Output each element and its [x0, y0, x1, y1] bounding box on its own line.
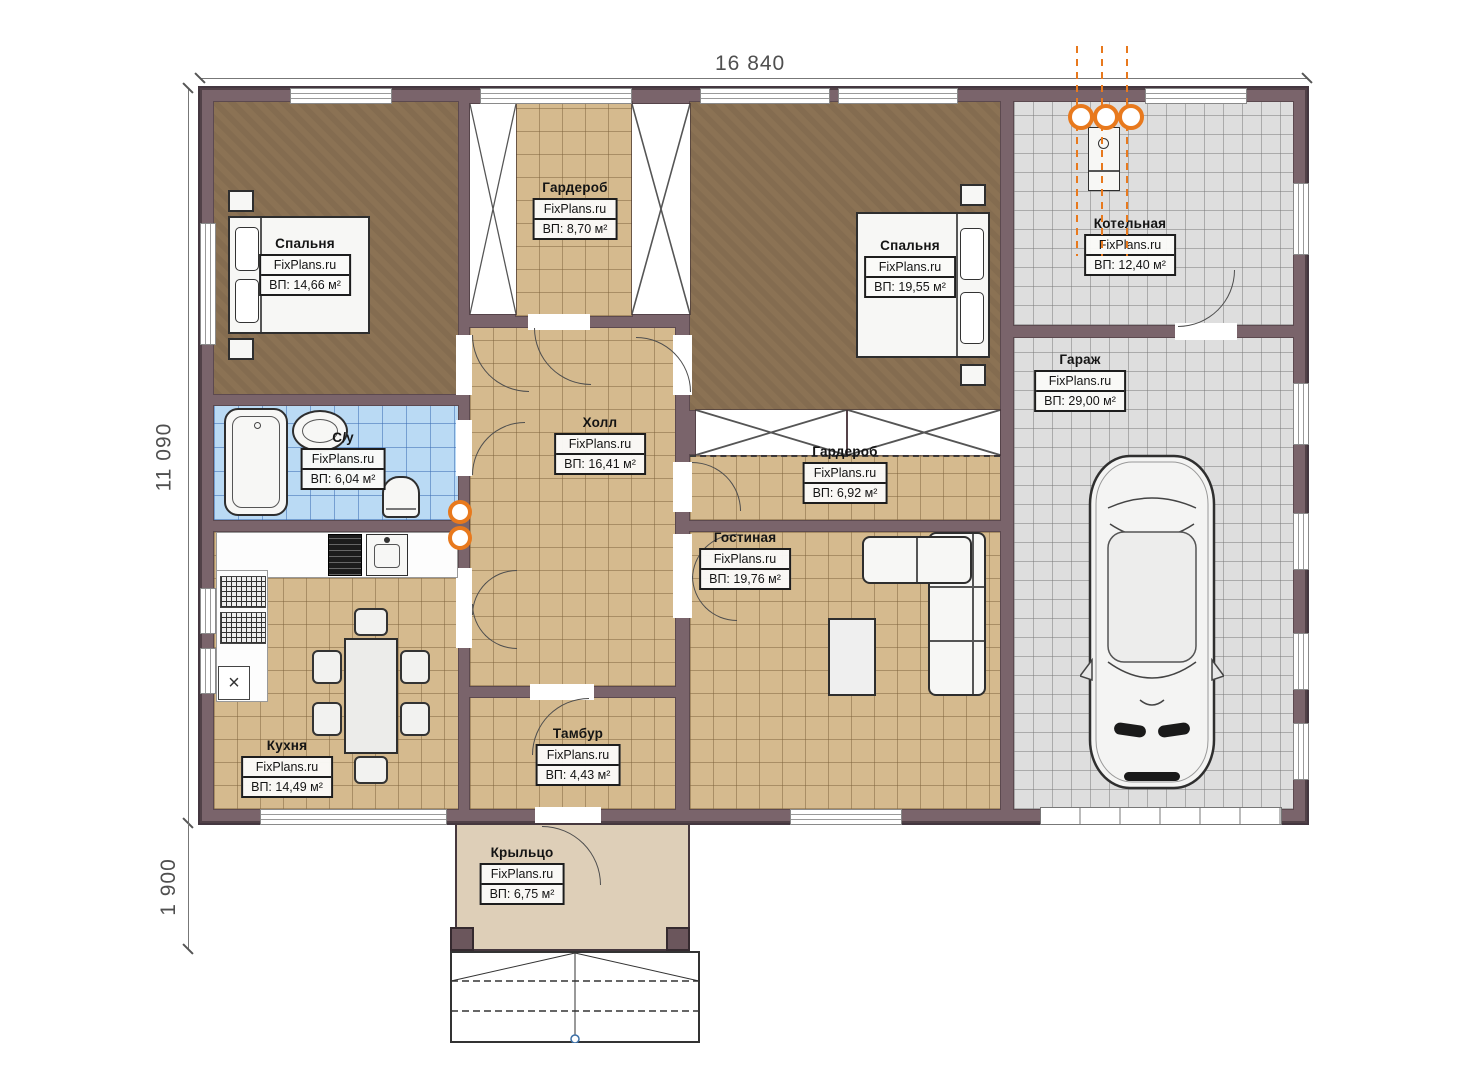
boiler-icon [1088, 127, 1120, 191]
room-area: ВП: 6,75 м² [482, 883, 563, 903]
door-opening [673, 534, 692, 618]
room-label-wardrobe-top: Гардероб FixPlans.ru ВП: 8,70 м² [533, 180, 618, 240]
room-name: С/у [301, 430, 386, 445]
room-area: ВП: 6,92 м² [805, 482, 886, 502]
room-label-boiler: Котельная FixPlans.ru ВП: 12,40 м² [1084, 216, 1176, 276]
room-area: ВП: 29,00 м² [1036, 390, 1124, 410]
garage-door [1040, 807, 1282, 825]
appliance-icon [220, 576, 266, 608]
room-area: ВП: 12,40 м² [1086, 254, 1174, 274]
room-name: Гардероб [803, 444, 888, 459]
utility-entry-icon [1118, 104, 1144, 130]
brand-watermark: FixPlans.ru [1036, 372, 1124, 390]
room-label-porch: Крыльцо FixPlans.ru ВП: 6,75 м² [480, 845, 565, 905]
window [1293, 383, 1309, 445]
window [1293, 183, 1309, 255]
window [480, 88, 632, 104]
stove-icon [328, 534, 362, 576]
utility-entry-icon [1068, 104, 1094, 130]
door-opening [456, 420, 472, 476]
room-name: Крыльцо [480, 845, 565, 860]
porch-post [450, 927, 474, 951]
brand-watermark: FixPlans.ru [303, 450, 384, 468]
brand-watermark: FixPlans.ru [866, 258, 954, 276]
room-area: ВП: 19,55 м² [866, 276, 954, 296]
room-name: Тамбур [536, 726, 621, 741]
room-label-garage: Гараж FixPlans.ru ВП: 29,00 м² [1034, 352, 1126, 412]
porch-post [666, 927, 690, 951]
room-area: ВП: 4,43 м² [538, 764, 619, 784]
door-opening [673, 462, 692, 512]
nightstand [228, 338, 254, 360]
dimension-height-label: 11 090 [152, 423, 176, 492]
closet-icon [470, 104, 516, 314]
room-label-wardrobe2: Гардероб FixPlans.ru ВП: 6,92 м² [803, 444, 888, 504]
window [200, 588, 216, 634]
room-boiler-floor [1014, 102, 1293, 325]
room-name: Спальня [259, 236, 351, 251]
room-area: ВП: 6,04 м² [303, 468, 384, 488]
brand-watermark: FixPlans.ru [701, 550, 789, 568]
window [1293, 633, 1309, 690]
room-name: Котельная [1084, 216, 1176, 231]
utility-line [1076, 46, 1078, 256]
coffee-table-icon [828, 618, 876, 696]
dimension-line-bottom-left [188, 823, 189, 950]
room-label-tambour: Тамбур FixPlans.ru ВП: 4,43 м² [536, 726, 621, 786]
radiator-valve-icon [448, 526, 472, 550]
room-label-bathroom: С/у FixPlans.ru ВП: 6,04 м² [301, 430, 386, 490]
closet-icon [632, 104, 690, 314]
brand-watermark: FixPlans.ru [243, 758, 331, 776]
nightstand [960, 184, 986, 206]
room-area: ВП: 19,76 м² [701, 568, 789, 588]
room-label-living: Гостиная FixPlans.ru ВП: 19,76 м² [699, 530, 791, 590]
utility-line [1101, 46, 1103, 256]
window [700, 88, 830, 104]
toilet-icon [382, 476, 420, 518]
room-label-hall: Холл FixPlans.ru ВП: 16,41 м² [554, 415, 646, 475]
brand-watermark: FixPlans.ru [805, 464, 886, 482]
room-area: ВП: 8,70 м² [535, 218, 616, 238]
dining-table-icon [344, 638, 398, 754]
door-opening [456, 335, 472, 395]
floor-plan-canvas: 16 840 11 090 1 900 [0, 0, 1473, 1080]
chair-icon [312, 702, 342, 736]
room-label-kitchen: Кухня FixPlans.ru ВП: 14,49 м² [241, 738, 333, 798]
brand-watermark: FixPlans.ru [538, 746, 619, 764]
dimension-width-label: 16 840 [715, 52, 785, 76]
radiator-valve-icon [448, 500, 472, 524]
window [1145, 88, 1247, 104]
porch-steps [450, 951, 700, 1043]
door-opening [456, 568, 472, 648]
nightstand [960, 364, 986, 386]
room-label-bedroom2: Спальня FixPlans.ru ВП: 19,55 м² [864, 238, 956, 298]
window [1293, 723, 1309, 780]
window [290, 88, 392, 104]
kitchen-sink-icon [366, 534, 408, 576]
room-name: Гостиная [699, 530, 791, 545]
utility-line [1126, 46, 1128, 256]
room-area: ВП: 16,41 м² [556, 453, 644, 473]
sofa-icon [862, 536, 972, 584]
room-name: Гараж [1034, 352, 1126, 367]
window [1293, 513, 1309, 570]
room-name: Спальня [864, 238, 956, 253]
room-label-bedroom1: Спальня FixPlans.ru ВП: 14,66 м² [259, 236, 351, 296]
dimension-porch-label: 1 900 [157, 858, 181, 916]
dimension-line-left [188, 88, 189, 823]
bathtub-icon [224, 408, 288, 516]
chair-icon [354, 608, 388, 636]
car-icon [1080, 448, 1224, 796]
appliance-x-icon: × [218, 666, 250, 700]
nightstand [228, 190, 254, 212]
room-name: Кухня [241, 738, 333, 753]
chair-icon [312, 650, 342, 684]
chair-icon [354, 756, 388, 784]
brand-watermark: FixPlans.ru [556, 435, 644, 453]
dimension-line-top [200, 78, 1307, 79]
door-opening [535, 807, 601, 823]
brand-watermark: FixPlans.ru [261, 256, 349, 274]
brand-watermark: FixPlans.ru [482, 865, 563, 883]
room-name: Холл [554, 415, 646, 430]
window [200, 223, 216, 345]
window [200, 648, 216, 694]
room-area: ВП: 14,49 м² [243, 776, 331, 796]
room-name: Гардероб [533, 180, 618, 195]
window [790, 809, 902, 825]
utility-entry-icon [1093, 104, 1119, 130]
window [838, 88, 958, 104]
brand-watermark: FixPlans.ru [535, 200, 616, 218]
chair-icon [400, 650, 430, 684]
appliance-icon [220, 612, 266, 644]
chair-icon [400, 702, 430, 736]
room-area: ВП: 14,66 м² [261, 274, 349, 294]
brand-watermark: FixPlans.ru [1086, 236, 1174, 254]
window [260, 809, 447, 825]
